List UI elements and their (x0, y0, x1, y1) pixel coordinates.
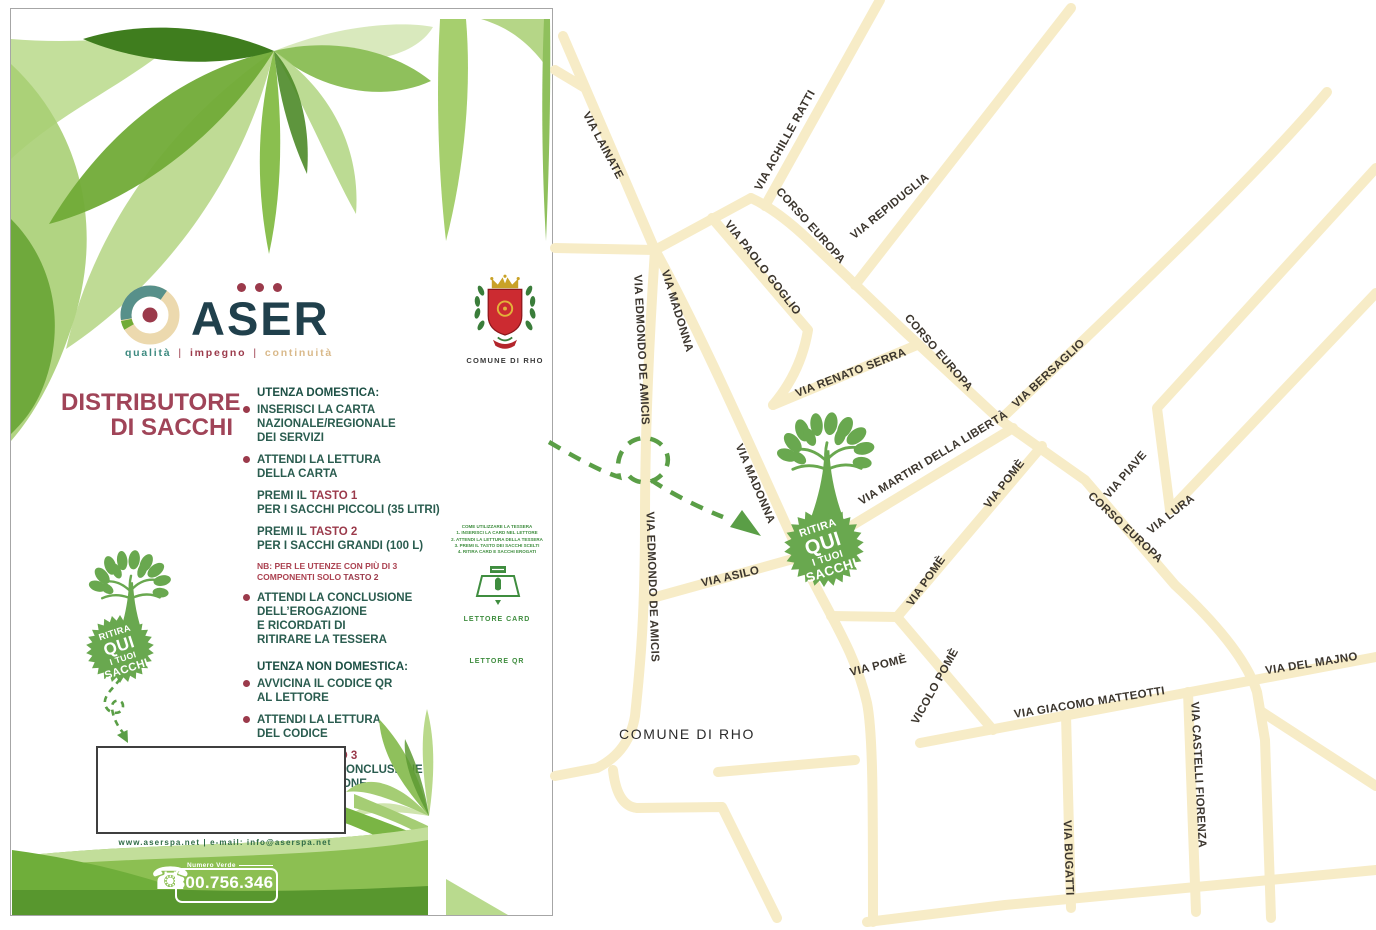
title-line-2: DI SACCHI (61, 415, 233, 440)
road (613, 770, 777, 918)
leaf-decoration-side-top (436, 11, 554, 251)
instruction-item: PREMI IL TASTO 2PER I SACCHI GRANDI (100… (243, 525, 451, 553)
flyer-panel: ASER qualità| impegno| continuità (10, 8, 553, 916)
page-title: DISTRIBUTORE DI SACCHI (61, 390, 233, 440)
road (1170, 293, 1376, 510)
city-map: VIA LAINATEVIA ACHILLE RATTICORSO EUROPA… (555, 0, 1376, 925)
brand-wordmark: ASER (191, 295, 330, 342)
crest-caption: COMUNE DI RHO (449, 356, 561, 365)
address-box (96, 746, 346, 834)
tagline-impegno: impegno (190, 347, 246, 359)
tagline-separator: | (178, 347, 183, 359)
lettore-qr-label: LETTORE QR (441, 658, 553, 665)
street-label: VIA BUGATTI (1061, 820, 1076, 896)
road (718, 760, 855, 772)
aser-logo-icon (114, 279, 186, 351)
instruction-item: ATTENDI LA LETTURADELLA CARTA (243, 453, 451, 481)
section-heading-domestic: UTENZA DOMESTICA: (257, 386, 451, 400)
instruction-item: ATTENDI LA CONCLUSIONEDELL’EROGAZIONEE R… (243, 591, 451, 647)
dashed-arrow-path (105, 679, 124, 734)
aser-logo-dots (237, 283, 282, 292)
street-label: VIA POMÈ (981, 457, 1027, 511)
lettore-card-label: LETTORE CARD (441, 616, 553, 623)
instruction-item: PREMI IL TASTO 1PER I SACCHI PICCOLI (35… (243, 489, 451, 517)
tagline-quality: qualità (125, 347, 171, 359)
section-heading-nondomestic: UTENZA NON DOMESTICA: (257, 660, 451, 674)
street-label: VIA MARTIRI DELLA LIBERTÀ (856, 408, 1010, 507)
tagline-separator: | (253, 347, 258, 359)
card-reader-icon (475, 565, 521, 611)
green-number-label: Numero Verde (187, 862, 273, 869)
street-label: CORSO EUROPA (902, 312, 975, 393)
road (1157, 168, 1376, 510)
street-label: VIA POMÈ (904, 553, 948, 608)
green-number: 800.756.346 (175, 873, 274, 893)
road (867, 870, 1376, 922)
comune-di-rho-crest (469, 267, 541, 355)
road (765, 0, 880, 206)
place-label: COMUNE DI RHO (619, 726, 755, 742)
dashed-arrow-map (549, 438, 723, 517)
street-label: VIA BERSAGLIO (1010, 337, 1087, 410)
title-line-1: DISTRIBUTORE (61, 390, 233, 415)
instruction-item: NB: PER LE UTENZE CON PIÙ DI 3COMPONENTI… (243, 561, 451, 583)
stage: ASER qualità| impegno| continuità (0, 0, 1376, 925)
dashed-arrow-flyer (93, 673, 155, 753)
road (855, 8, 1071, 285)
street-label: VIA RENATO SERRA (794, 347, 908, 400)
street-label: VIA PAOLO GOGLIO (722, 219, 803, 318)
brand-tagline: qualità| impegno| continuità (103, 347, 355, 359)
instruction-item: AVVICINA IL CODICE QRAL LETTORE (243, 677, 451, 705)
mini-lines: 1. INSERISCI LA CARD NEL LETTORE2. ATTEN… (441, 530, 553, 555)
green-number-label-text: Numero Verde (187, 862, 236, 869)
domestic-items: INSERISCI LA CARTANAZIONALE/REGIONALEDEI… (243, 403, 451, 647)
road (555, 248, 655, 250)
street-label: VIA ASILO (700, 565, 761, 590)
website-line: www.aserspa.net | e-mail: info@aserspa.n… (69, 838, 381, 847)
instruction-item: INSERISCI LA CARTANAZIONALE/REGIONALEDEI… (243, 403, 451, 445)
leaf-decoration-side-bottom (435, 875, 553, 915)
road (831, 616, 897, 617)
arrowhead-map (730, 510, 761, 536)
map-region: VIA LAINATEVIA ACHILLE RATTICORSO EUROPA… (555, 0, 1376, 925)
street-label: VIA POMÈ (848, 652, 908, 679)
street-label: CORSO EUROPA (773, 186, 847, 266)
street-label: VIA PIAVE (1102, 449, 1149, 501)
road (1262, 712, 1376, 786)
tagline-continuita: continuità (265, 347, 333, 359)
card-howto-mini-text: COME UTILIZZARE LA TESSERA 1. INSERISCI … (441, 524, 553, 555)
